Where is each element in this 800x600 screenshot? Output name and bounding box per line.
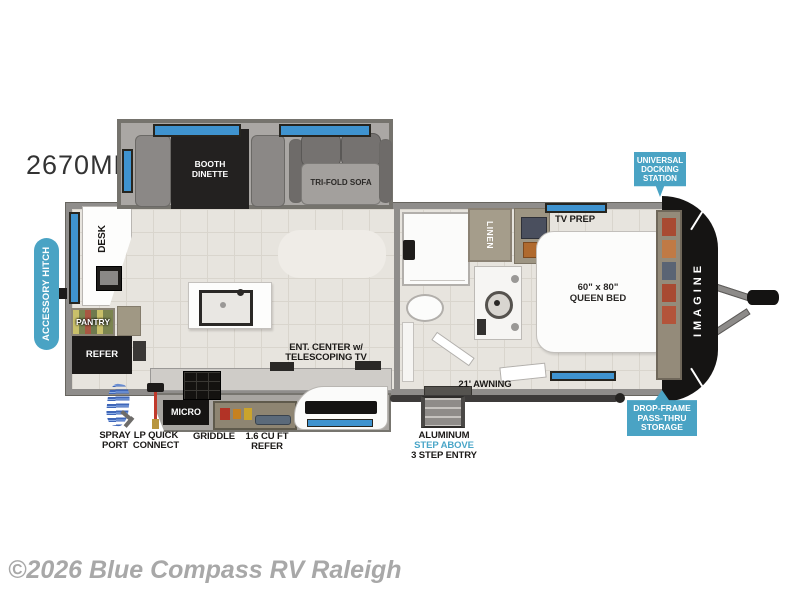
queen-bed: 60" x 80" QUEEN BED xyxy=(536,231,660,353)
hitch-coupler-icon xyxy=(747,290,779,305)
copyright-watermark: ©2026 Blue Compass RV Raleigh xyxy=(8,556,402,585)
queen-bed-label-line2: QUEEN BED xyxy=(537,293,659,304)
console-window-icon xyxy=(307,419,373,427)
wardrobe-item-icon xyxy=(662,306,676,324)
rear-wall-window-icon xyxy=(69,212,80,304)
sofa-back-cushion-right xyxy=(341,133,381,167)
dinette-sofa-slideout: BOOTH DINETTE TRI-FOLD SOFA xyxy=(117,119,393,209)
universal-docking-badge: UNIVERSAL DOCKING STATION xyxy=(634,152,686,197)
cap-accent-line-top-icon xyxy=(690,204,708,231)
desk-monitor-icon xyxy=(96,266,122,291)
accessory-hitch-badge: ACCESSORY HITCH xyxy=(34,238,59,350)
micro-label: MICRO xyxy=(171,407,201,417)
bathroom-vanity xyxy=(474,266,522,340)
linen-closet: LINEN xyxy=(468,208,512,262)
sofa-back-cushion-left xyxy=(301,133,341,167)
pantry: PANTRY xyxy=(71,308,115,336)
kitchen-island xyxy=(188,282,272,329)
dinette-bench-right xyxy=(251,135,285,207)
small-refer-label: 1.6 CU FT REFER xyxy=(237,432,297,452)
ent-center-label-line2: TELESCOPING TV xyxy=(268,353,384,363)
linen-label: LINEN xyxy=(485,221,495,249)
awning-end-cap-icon xyxy=(615,393,625,403)
refer-side-cabinet xyxy=(133,341,146,361)
docking-badge-line1: UNIVERSAL xyxy=(634,156,686,165)
docking-badge-line2: DOCKING xyxy=(634,165,686,174)
wardrobe-item-icon xyxy=(662,262,676,280)
shower xyxy=(402,212,470,286)
vanity-drain-icon xyxy=(494,300,500,306)
vanity-fixture2-icon xyxy=(511,323,519,331)
floorplan-canvas: 2670MK ACCESSORY HITCH BOOTH DINETTE TRI… xyxy=(0,0,800,600)
griddle-plate-icon xyxy=(255,415,291,425)
slideout-window-left-icon xyxy=(122,149,133,193)
shower-fixture-icon xyxy=(403,240,415,260)
outdoor-griddle xyxy=(213,401,297,430)
bathroom-counter xyxy=(402,322,414,382)
slideout-window-top1-icon xyxy=(153,124,241,137)
area-rug xyxy=(278,230,386,278)
desk-label: DESK xyxy=(97,225,108,253)
booth-dinette-label-line2: DINETTE xyxy=(171,170,249,180)
griddle-item-icon xyxy=(220,408,230,420)
dropframe-badge-line3: STORAGE xyxy=(627,423,697,433)
sink-faucet-icon xyxy=(237,289,244,296)
refer-label: REFER xyxy=(86,349,118,360)
lp-quick-connect-label: LP QUICK CONNECT xyxy=(128,431,184,451)
bathroom-wall xyxy=(394,206,400,392)
refrigerator: REFER xyxy=(72,336,132,374)
lp-hose-icon xyxy=(154,392,157,420)
ent-center-label: ENT. CENTER w/ TELESCOPING TV xyxy=(268,343,384,363)
wardrobe-item-icon xyxy=(662,240,676,258)
bedroom-bottom-window-icon xyxy=(550,371,616,381)
wardrobe-item-icon xyxy=(662,284,676,302)
vanity-fixture-icon xyxy=(511,275,519,283)
entry-steps-label: ALUMINUM STEP ABOVE 3 STEP ENTRY xyxy=(400,431,488,461)
tri-fold-sofa-seat: TRI-FOLD SOFA xyxy=(301,163,381,205)
lp-wall-fitting-icon xyxy=(147,383,164,392)
counter-item-icon xyxy=(270,362,294,371)
drop-frame-storage-badge: DROP-FRAME PASS-THRU STORAGE xyxy=(627,390,697,436)
steps-label-line3: 3 STEP ENTRY xyxy=(400,451,488,461)
sofa-armrest-right xyxy=(379,139,392,203)
toilet-icon xyxy=(406,294,444,322)
lp-label-line2: CONNECT xyxy=(128,441,184,451)
slideout-window-top2-icon xyxy=(279,124,371,137)
pantry-cabinet xyxy=(117,306,141,336)
microwave: MICRO xyxy=(163,400,209,425)
dinette-bench-left xyxy=(135,135,171,207)
sink-drain-icon xyxy=(220,302,226,308)
telescoping-tv-icon xyxy=(305,401,377,414)
front-wardrobe xyxy=(656,210,682,380)
range-cooktop-icon xyxy=(183,371,221,400)
bedroom-top-window-icon xyxy=(545,203,607,213)
brand-imagine-label: IMAGINE xyxy=(692,234,704,364)
wardrobe-item-icon xyxy=(662,218,676,236)
tv-prep-label: TV PREP xyxy=(540,215,610,225)
queen-bed-label-line1: 60" x 80" xyxy=(537,282,659,293)
docking-badge-line3: STATION xyxy=(634,174,686,183)
griddle-item-icon xyxy=(233,409,241,419)
entry-steps xyxy=(421,396,465,428)
small-refer-label-line2: REFER xyxy=(237,442,297,452)
lp-brass-tip-icon xyxy=(152,419,159,429)
tri-fold-sofa-label: TRI-FOLD SOFA xyxy=(310,178,371,187)
griddle-item-icon xyxy=(244,408,252,420)
awning-label: 21' AWNING xyxy=(440,380,530,390)
dinette-table: BOOTH DINETTE xyxy=(171,129,249,209)
vanity-trash-icon xyxy=(477,319,486,335)
island-sink xyxy=(199,290,253,326)
entertainment-console xyxy=(294,386,388,430)
cap-accent-line-bottom-icon xyxy=(690,368,708,395)
pantry-label: PANTRY xyxy=(76,317,110,327)
